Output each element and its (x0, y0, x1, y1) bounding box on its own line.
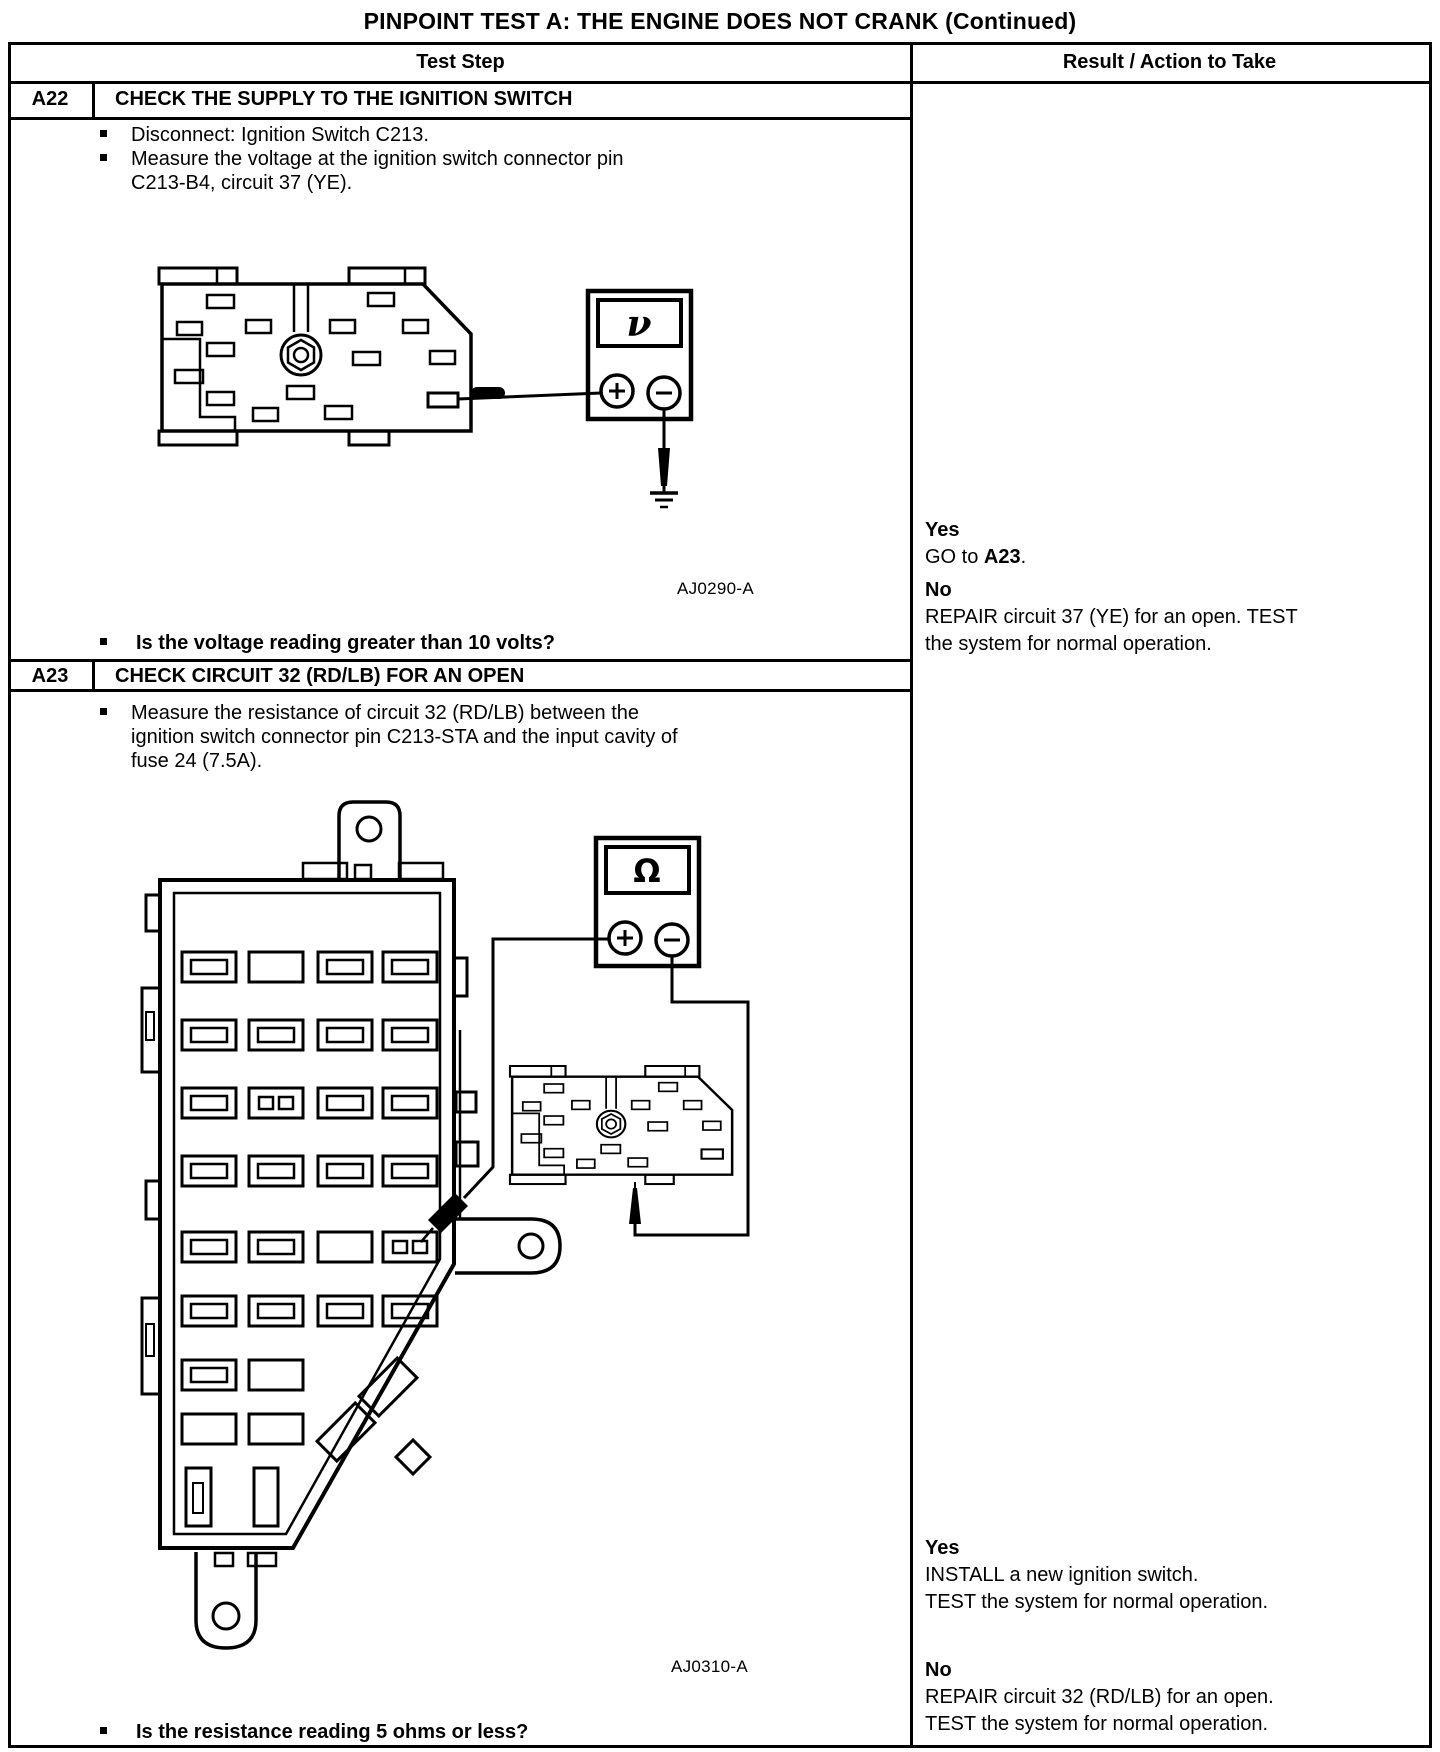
a22-step-number: A22 (11, 88, 89, 111)
no-label: No (925, 1657, 1425, 1684)
no-action-line: the system for normal operation. (925, 631, 1425, 658)
a22-number-cell-divider (92, 81, 95, 120)
a22-title-bottom-border (11, 117, 910, 120)
yes-action: GO to A23. (925, 544, 1425, 571)
a22-step-line: Measure the voltage at the ignition swit… (131, 147, 624, 171)
a23-top-border (11, 659, 910, 662)
yes-label: Yes (925, 1535, 1425, 1562)
a23-number-cell-divider (92, 659, 95, 692)
a22-question: Is the voltage reading greater than 10 v… (136, 631, 555, 655)
negative-test-lead (629, 957, 748, 1235)
yes-action-line: TEST the system for normal operation. (925, 1589, 1425, 1616)
ground-symbol (650, 409, 678, 507)
a23-step-line: Measure the resistance of circuit 32 (RD… (131, 701, 639, 725)
bullet-marker (100, 154, 107, 161)
a23-step-line: ignition switch connector pin C213-STA a… (131, 725, 678, 749)
no-action-line: REPAIR circuit 37 (YE) for an open. TEST (925, 604, 1425, 631)
fuse-junction-box (142, 802, 560, 1648)
column-header-test-step: Test Step (11, 51, 910, 74)
a23-result-no: No REPAIR circuit 32 (RD/LB) for an open… (925, 1657, 1425, 1738)
pinpoint-test-table: Test Step Result / Action to Take A22 CH… (8, 42, 1432, 1748)
a22-wiring-diagram: ν (93, 232, 803, 612)
no-action-line: TEST the system for normal operation. (925, 1711, 1425, 1738)
column-divider (910, 45, 913, 1745)
ignition-switch-connector (159, 268, 471, 445)
yes-label: Yes (925, 517, 1425, 544)
positive-test-lead (421, 939, 608, 1242)
a22-step-line: C213-B4, circuit 37 (YE). (131, 171, 352, 195)
a23-title-bottom-border (11, 689, 910, 692)
no-action-line: REPAIR circuit 32 (RD/LB) for an open. (925, 1684, 1425, 1711)
figure-label: AJ0290-A (677, 579, 754, 599)
bullet-marker (100, 130, 107, 137)
a23-step-number: A23 (11, 665, 89, 688)
page-title: PINPOINT TEST A: THE ENGINE DOES NOT CRA… (0, 8, 1440, 35)
figure-label: AJ0310-A (671, 1657, 748, 1677)
a22-step-line: Disconnect: Ignition Switch C213. (131, 123, 429, 147)
test-probe (471, 387, 505, 399)
yes-action-line: INSTALL a new ignition switch. (925, 1562, 1425, 1589)
header-bottom-border (11, 81, 1429, 84)
no-label: No (925, 577, 1425, 604)
a23-question: Is the resistance reading 5 ohms or less… (136, 1720, 528, 1744)
a23-result-yes: Yes INSTALL a new ignition switch. TEST … (925, 1535, 1425, 1616)
a22-result-yes: Yes GO to A23. (925, 517, 1425, 571)
bullet-marker (100, 1727, 107, 1734)
a22-result-no: No REPAIR circuit 37 (YE) for an open. T… (925, 577, 1425, 658)
column-header-result: Result / Action to Take (910, 51, 1429, 74)
a22-step-title: CHECK THE SUPPLY TO THE IGNITION SWITCH (115, 88, 572, 111)
voltmeter-symbol: ν (627, 303, 652, 345)
a23-wiring-diagram: Ω (98, 782, 803, 1662)
bullet-marker (100, 638, 107, 645)
bullet-marker (100, 708, 107, 715)
a23-step-line: fuse 24 (7.5A). (131, 749, 262, 773)
a23-step-title: CHECK CIRCUIT 32 (RD/LB) FOR AN OPEN (115, 665, 524, 688)
ignition-switch-connector (510, 1066, 732, 1184)
ohmmeter-symbol: Ω (633, 852, 660, 890)
